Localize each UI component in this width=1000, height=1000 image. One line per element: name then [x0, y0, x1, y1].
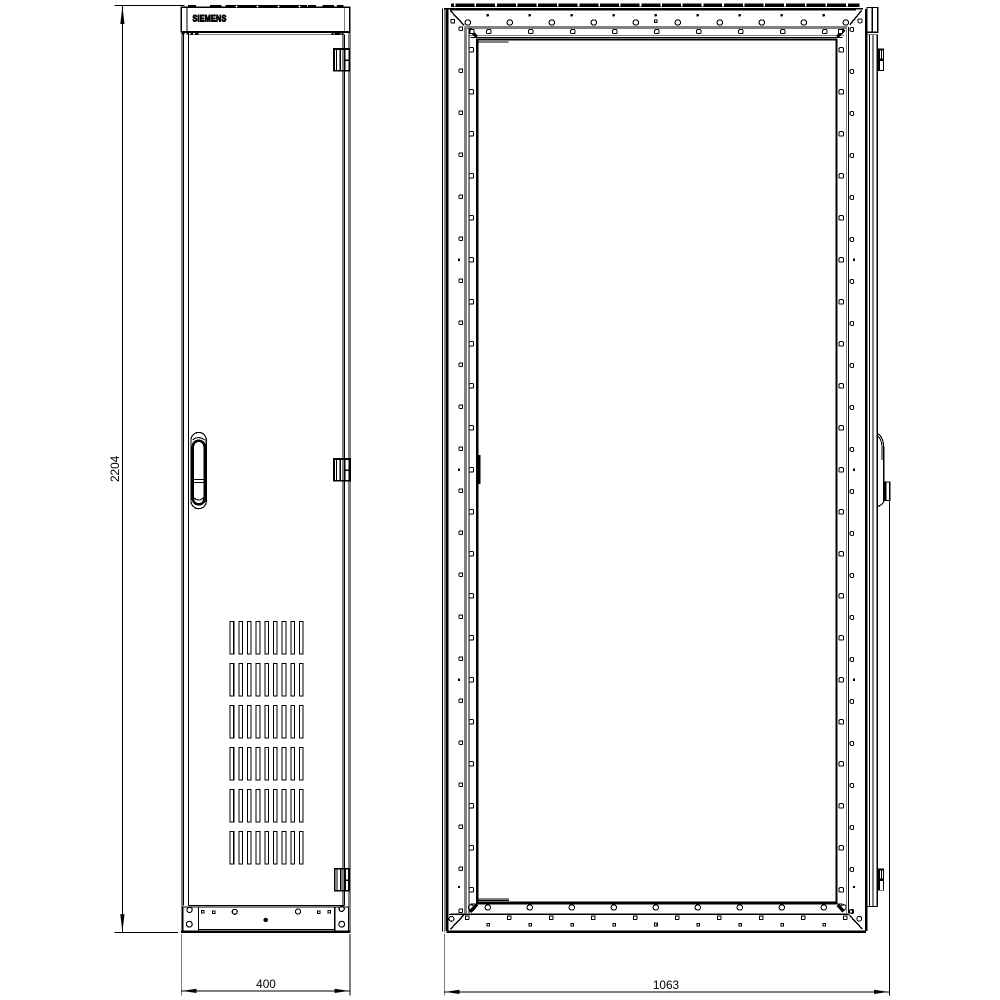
svg-text:SIEMENS: SIEMENS: [193, 13, 227, 23]
svg-text:1063: 1063: [653, 978, 680, 992]
svg-text:2204: 2204: [108, 455, 122, 482]
svg-text:400: 400: [256, 977, 276, 991]
